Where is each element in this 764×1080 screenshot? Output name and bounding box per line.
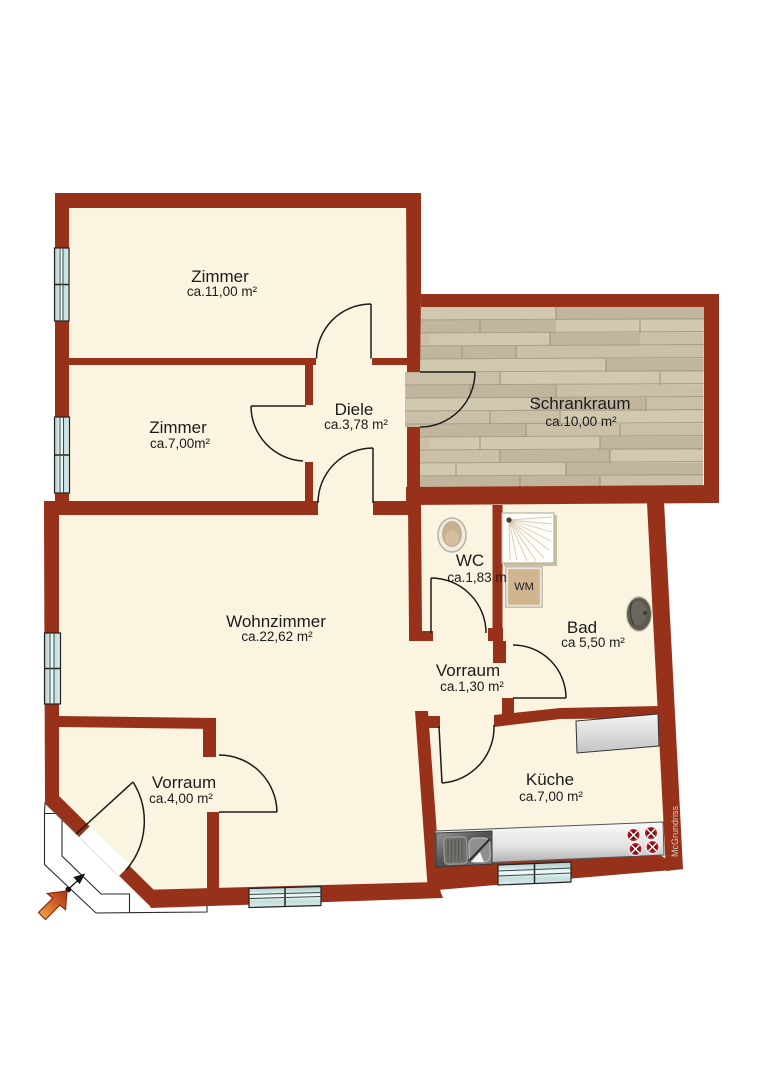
svg-text:ca.10,00 m²: ca.10,00 m² bbox=[545, 414, 617, 429]
svg-text:ca.4,00 m²: ca.4,00 m² bbox=[149, 791, 213, 806]
svg-text:ca.3,78 m²: ca.3,78 m² bbox=[324, 417, 388, 432]
svg-text:Vorraum: Vorraum bbox=[436, 661, 500, 680]
svg-text:WC: WC bbox=[456, 551, 484, 570]
svg-text:Küche: Küche bbox=[526, 770, 574, 789]
svg-text:WM: WM bbox=[514, 581, 534, 593]
svg-text:ca 5,50 m²: ca 5,50 m² bbox=[561, 635, 625, 650]
svg-text:Vorraum: Vorraum bbox=[152, 773, 216, 792]
svg-text:Schrankraum: Schrankraum bbox=[529, 394, 630, 413]
svg-text:ca.7,00m²: ca.7,00m² bbox=[150, 436, 211, 451]
svg-text:ca.11,00 m²: ca.11,00 m² bbox=[187, 284, 258, 299]
svg-text:ca.1,30 m²: ca.1,30 m² bbox=[440, 679, 504, 694]
svg-text:ca.7,00 m²: ca.7,00 m² bbox=[519, 789, 583, 804]
svg-text:ca.1,83 m: ca.1,83 m bbox=[447, 570, 506, 585]
svg-text:Zimmer: Zimmer bbox=[149, 418, 207, 437]
svg-text:McGrundriss: McGrundriss bbox=[670, 805, 680, 857]
svg-text:ca.22,62 m²: ca.22,62 m² bbox=[241, 629, 313, 644]
